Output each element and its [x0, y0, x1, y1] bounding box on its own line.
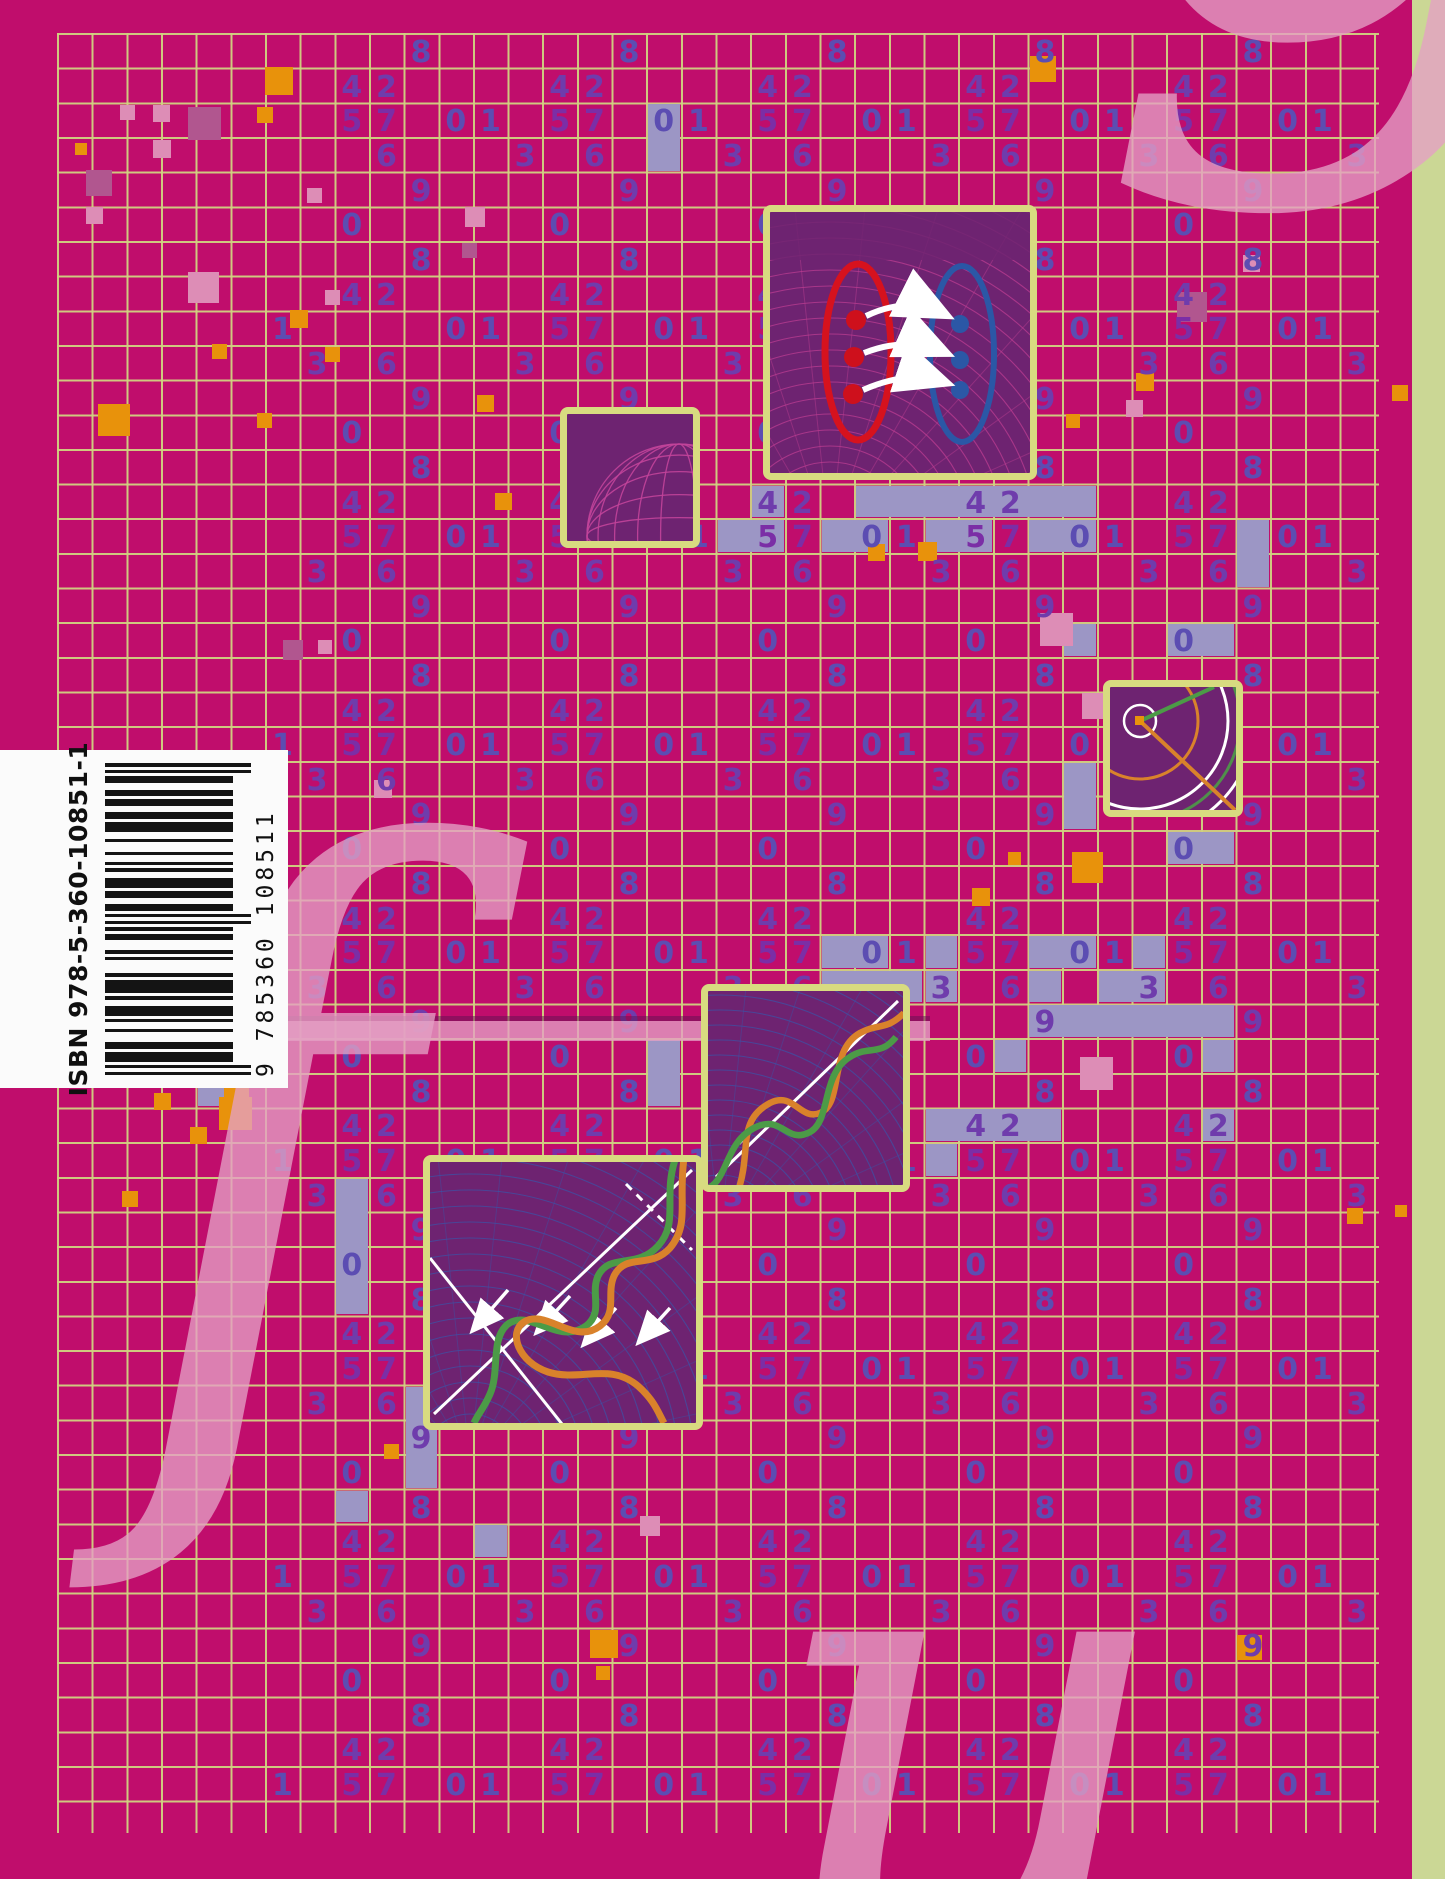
- pattern-digit: 5: [750, 1561, 785, 1594]
- pattern-digit: 0: [750, 833, 785, 866]
- pattern-digit: 8: [1235, 1076, 1270, 1109]
- pattern-digit: 9: [612, 799, 647, 832]
- pattern-digit: 1: [1305, 521, 1340, 554]
- barcode-gap: [105, 858, 233, 861]
- pattern-digit: 8: [1235, 36, 1270, 69]
- pattern-digit: 7: [577, 1561, 612, 1594]
- pattern-digit: 7: [785, 105, 820, 138]
- pattern-digit: 6: [1201, 140, 1236, 173]
- pattern-digit: 2: [369, 903, 404, 936]
- barcode-gap: [105, 1049, 233, 1052]
- pattern-digit: 2: [993, 71, 1028, 104]
- pink-square: [465, 207, 485, 227]
- pattern-digit: 5: [958, 1769, 993, 1802]
- pattern-digit: 1: [265, 1561, 300, 1594]
- pattern-digit: 5: [750, 1769, 785, 1802]
- pattern-digit: 7: [785, 1769, 820, 1802]
- barcode-gap: [105, 977, 233, 980]
- pattern-digit: 3: [1339, 1596, 1374, 1629]
- orange-square: [257, 413, 272, 428]
- pattern-digit: 3: [1339, 1180, 1374, 1213]
- pattern-digit: 4: [334, 71, 369, 104]
- barcode-gap: [105, 773, 233, 776]
- barcode-gap: [105, 1039, 233, 1042]
- pattern-digit: 5: [1166, 1561, 1201, 1594]
- barcode-bar: [105, 904, 233, 907]
- codomain-dot: [951, 381, 969, 399]
- barcode-bar: [105, 983, 233, 986]
- barcode-bar: [105, 878, 233, 881]
- pattern-digit: 9: [1027, 1422, 1062, 1455]
- barcode-bar: [105, 908, 233, 911]
- pattern-digit: 7: [1201, 105, 1236, 138]
- pattern-digit: 8: [404, 452, 439, 485]
- barcode-bar: [105, 895, 233, 898]
- pattern-digit: 0: [1062, 729, 1097, 762]
- barcode-gap: [105, 947, 233, 950]
- pattern-digit: 0: [958, 625, 993, 658]
- pattern-digit: 7: [1201, 1769, 1236, 1802]
- pattern-digit: 8: [1027, 1700, 1062, 1733]
- pattern-digit: 1: [1305, 937, 1340, 970]
- pattern-digit: 4: [958, 1734, 993, 1767]
- pattern-digit: 7: [577, 937, 612, 970]
- pattern-digit: 5: [334, 1145, 369, 1178]
- pattern-digit: 0: [646, 729, 681, 762]
- orange-square: [1392, 385, 1408, 401]
- pink-square: [318, 640, 332, 654]
- pattern-digit: 1: [1305, 1561, 1340, 1594]
- pattern-digit: 6: [577, 1596, 612, 1629]
- pattern-digit: 0: [1270, 1769, 1305, 1802]
- pattern-digit: 8: [612, 1492, 647, 1525]
- pattern-digit: 3: [716, 1596, 751, 1629]
- pattern-digit: 8: [612, 1700, 647, 1733]
- pattern-digit: 1: [1097, 105, 1132, 138]
- pink-square: [1080, 1057, 1113, 1090]
- pattern-digit: 4: [1166, 71, 1201, 104]
- pattern-digit: 5: [542, 105, 577, 138]
- pattern-digit: 0: [334, 1457, 369, 1490]
- pattern-digit: 8: [1027, 36, 1062, 69]
- pattern-digit: 0: [542, 625, 577, 658]
- pattern-digit: 4: [750, 1734, 785, 1767]
- pattern-digit: 3: [1131, 1180, 1166, 1213]
- iteration-arrow: [474, 1290, 508, 1329]
- lavender-cell: [475, 1525, 507, 1557]
- pattern-digit: 7: [993, 1145, 1028, 1178]
- pattern-digit: 3: [1339, 348, 1374, 381]
- pattern-digit: 7: [785, 1353, 820, 1386]
- pattern-digit: 9: [820, 1422, 855, 1455]
- pattern-digit: 2: [785, 1318, 820, 1351]
- pattern-digit: 6: [1201, 1180, 1236, 1213]
- pattern-digit: 9: [1235, 591, 1270, 624]
- pattern-digit: 6: [1201, 556, 1236, 589]
- barcode-gap: [105, 832, 233, 835]
- pattern-digit: 0: [542, 209, 577, 242]
- pattern-digit: 5: [1166, 1145, 1201, 1178]
- pattern-digit: 3: [924, 556, 959, 589]
- barcode-gap: [105, 1000, 233, 1003]
- pattern-digit: 2: [993, 903, 1028, 936]
- lavender-cell: [995, 1040, 1027, 1072]
- isbn-barcode-panel: ISBN 978-5-360-10851-1 9 785360 108511: [0, 750, 288, 1088]
- pattern-digit: 0: [854, 521, 889, 554]
- pattern-digit: 5: [542, 313, 577, 346]
- pattern-digit: 0: [854, 937, 889, 970]
- orange-curve: [738, 1013, 903, 1185]
- pattern-digit: 2: [577, 279, 612, 312]
- pattern-digit: 8: [404, 1492, 439, 1525]
- pattern-digit: 5: [334, 1561, 369, 1594]
- pattern-digit: 5: [1166, 313, 1201, 346]
- pattern-digit: 2: [1201, 1734, 1236, 1767]
- codomain-dot: [951, 351, 969, 369]
- pattern-digit: 3: [508, 1596, 543, 1629]
- pattern-digit: 8: [612, 1076, 647, 1109]
- pattern-digit: 2: [993, 1318, 1028, 1351]
- barcode-gap: [105, 1023, 233, 1026]
- pattern-digit: 6: [785, 1596, 820, 1629]
- pattern-digit: 3: [300, 1388, 335, 1421]
- barcode-gap: [105, 940, 233, 943]
- pattern-digit: 0: [1166, 625, 1201, 658]
- pattern-digit: 1: [681, 313, 716, 346]
- figure-angle-arcs: [1103, 680, 1243, 817]
- pattern-digit: 0: [958, 1665, 993, 1698]
- orange-square: [224, 1088, 249, 1113]
- pattern-digit: 6: [577, 972, 612, 1005]
- pattern-digit: 0: [854, 105, 889, 138]
- barcode-gap: [105, 888, 233, 891]
- barcode-bar: [105, 803, 233, 806]
- pattern-digit: 5: [958, 937, 993, 970]
- pattern-digit: 3: [924, 1180, 959, 1213]
- barcode-bar: [105, 885, 233, 888]
- barcode-gap: [105, 819, 233, 822]
- pattern-digit: 0: [334, 417, 369, 450]
- pattern-digit: 9: [1027, 591, 1062, 624]
- pattern-digit: 1: [1097, 1145, 1132, 1178]
- pattern-digit: 8: [612, 36, 647, 69]
- orange-square: [265, 67, 293, 95]
- pattern-digit: 9: [1027, 175, 1062, 208]
- pattern-digit: 5: [334, 105, 369, 138]
- pattern-digit: 5: [542, 1769, 577, 1802]
- pattern-digit: 2: [785, 695, 820, 728]
- pattern-digit: 7: [577, 105, 612, 138]
- pattern-digit: 6: [993, 1388, 1028, 1421]
- domain-dot: [844, 347, 864, 367]
- pattern-digit: 4: [958, 1526, 993, 1559]
- pattern-digit: 9: [1027, 1006, 1062, 1039]
- pattern-digit: 3: [1339, 972, 1374, 1005]
- barcode-bar: [105, 1009, 233, 1012]
- pattern-digit: 0: [1062, 1353, 1097, 1386]
- angle-ray-green: [1140, 687, 1214, 721]
- pattern-digit: 3: [300, 972, 335, 1005]
- pattern-digit: 2: [1201, 903, 1236, 936]
- pattern-digit: 5: [334, 937, 369, 970]
- pattern-digit: 3: [508, 348, 543, 381]
- pattern-digit: 3: [1131, 1388, 1166, 1421]
- pattern-digit: 1: [473, 1561, 508, 1594]
- pattern-digit: 3: [508, 972, 543, 1005]
- pattern-digit: 3: [300, 1596, 335, 1629]
- pattern-digit: 3: [300, 556, 335, 589]
- pink-square: [462, 243, 477, 258]
- pattern-digit: 0: [1166, 209, 1201, 242]
- pattern-digit: 0: [334, 1665, 369, 1698]
- pattern-digit: 9: [404, 591, 439, 624]
- barcode-bar: [105, 822, 233, 825]
- pattern-digit: 8: [1027, 1076, 1062, 1109]
- pattern-digit: 2: [1201, 71, 1236, 104]
- pattern-digit: 3: [924, 1388, 959, 1421]
- pattern-digit: 0: [854, 729, 889, 762]
- pattern-digit: 1: [889, 1561, 924, 1594]
- pattern-digit: 1: [1305, 1769, 1340, 1802]
- pattern-digit: 7: [993, 1353, 1028, 1386]
- pattern-digit: 0: [750, 1249, 785, 1282]
- barcode-gap: [105, 960, 233, 963]
- pattern-digit: 3: [716, 140, 751, 173]
- pattern-digit: 8: [612, 868, 647, 901]
- pattern-digit: 5: [958, 1145, 993, 1178]
- pattern-digit: 9: [820, 1630, 855, 1663]
- barcode-bar: [105, 839, 233, 842]
- pattern-digit: 5: [1166, 937, 1201, 970]
- pattern-digit: 0: [1270, 1353, 1305, 1386]
- pattern-digit: 8: [404, 36, 439, 69]
- barcode-gap: [105, 865, 233, 868]
- pink-square: [153, 105, 170, 122]
- pattern-digit: 6: [993, 1596, 1028, 1629]
- pattern-digit: 0: [438, 313, 473, 346]
- pattern-digit: 2: [369, 487, 404, 520]
- figure-surface-mesh: [560, 407, 700, 548]
- barcode-bar: [105, 790, 233, 793]
- pattern-digit: 4: [542, 1526, 577, 1559]
- pattern-digit: 7: [577, 1769, 612, 1802]
- pattern-digit: 5: [1166, 521, 1201, 554]
- barcode-gap: [105, 855, 233, 858]
- pattern-digit: 4: [334, 1526, 369, 1559]
- pattern-digit: 3: [924, 764, 959, 797]
- barcode-gap: [105, 963, 233, 966]
- barcode-bar: [105, 862, 233, 865]
- pattern-digit: 8: [820, 868, 855, 901]
- barcode-bar: [105, 826, 233, 829]
- pattern-digit: 0: [438, 1561, 473, 1594]
- pattern-digit: 1: [1305, 1145, 1340, 1178]
- pattern-digit: 5: [334, 729, 369, 762]
- barcode-bar: [105, 1006, 233, 1009]
- pattern-digit: 0: [646, 313, 681, 346]
- barcode-bar: [105, 914, 251, 917]
- barcode-bar: [105, 973, 233, 976]
- pattern-digit: 1: [473, 521, 508, 554]
- pattern-digit: 4: [542, 279, 577, 312]
- pattern-digit: 8: [1235, 1284, 1270, 1317]
- pattern-digit: 8: [404, 1700, 439, 1733]
- pattern-digit: 0: [646, 1561, 681, 1594]
- orange-square: [1072, 852, 1103, 883]
- barcode-bar: [105, 881, 233, 884]
- pattern-digit: 3: [1339, 1388, 1374, 1421]
- barcode-gap: [105, 809, 233, 812]
- barcode-gap: [105, 911, 251, 914]
- book-back-cover: 8425701690842013690184257013690842570136…: [0, 0, 1445, 1879]
- figure-mapping-diagram: [763, 205, 1037, 480]
- pattern-digit: 0: [334, 1041, 369, 1074]
- pattern-digit: 1: [1305, 105, 1340, 138]
- orange-square: [190, 1127, 207, 1144]
- pattern-digit: 4: [542, 695, 577, 728]
- right-edge-strip: [1412, 0, 1445, 1879]
- pattern-digit: 0: [1166, 1665, 1201, 1698]
- pink-square: [307, 188, 322, 203]
- pattern-digit: 5: [1166, 1769, 1201, 1802]
- pattern-digit: 5: [334, 521, 369, 554]
- pattern-digit: 4: [334, 1318, 369, 1351]
- pattern-digit: 6: [1201, 348, 1236, 381]
- barcode-bar: [105, 986, 233, 989]
- orange-square: [212, 344, 227, 359]
- pattern-digit: 0: [438, 521, 473, 554]
- barcode-bar: [105, 957, 233, 960]
- pattern-digit: 0: [1270, 937, 1305, 970]
- barcode-bar: [105, 1045, 233, 1048]
- barcode-gap: [105, 783, 233, 786]
- orange-square: [257, 107, 273, 123]
- pattern-digit: 1: [1097, 937, 1132, 970]
- pattern-digit: 1: [681, 729, 716, 762]
- barcode-gap: [105, 1003, 233, 1006]
- pattern-digit: 8: [612, 660, 647, 693]
- pattern-digit: 4: [542, 71, 577, 104]
- pattern-digit: 7: [369, 1769, 404, 1802]
- lavender-cell: [926, 1144, 958, 1176]
- pattern-digit: 4: [334, 279, 369, 312]
- pattern-digit: 9: [1235, 1422, 1270, 1455]
- pattern-digit: 7: [785, 937, 820, 970]
- pattern-digit: 4: [750, 695, 785, 728]
- pattern-digit: 0: [1270, 313, 1305, 346]
- pattern-digit: 9: [404, 175, 439, 208]
- pattern-digit: 3: [716, 556, 751, 589]
- barcode-gap: [105, 1032, 233, 1035]
- sphere-wireframe: [587, 444, 693, 541]
- barcode-gap: [105, 845, 233, 848]
- pattern-digit: 4: [1166, 1110, 1201, 1143]
- pattern-digit: 7: [993, 937, 1028, 970]
- pink-square: [153, 140, 171, 158]
- barcode-gap: [105, 944, 233, 947]
- pattern-digit: 0: [1062, 1145, 1097, 1178]
- pattern-digit: 2: [369, 1526, 404, 1559]
- pattern-digit: 0: [646, 105, 681, 138]
- pattern-digit: 3: [1131, 140, 1166, 173]
- pattern-digit: 9: [612, 1630, 647, 1663]
- pattern-digit: 0: [1270, 1561, 1305, 1594]
- pattern-digit: 1: [681, 1561, 716, 1594]
- barcode-bars: [105, 763, 235, 1075]
- pattern-digit: 0: [854, 1353, 889, 1386]
- pattern-digit: 0: [1166, 1457, 1201, 1490]
- pattern-digit: 5: [958, 1561, 993, 1594]
- pattern-digit: 0: [1270, 521, 1305, 554]
- pattern-digit: 9: [820, 175, 855, 208]
- orange-square: [1395, 1205, 1407, 1217]
- barcode-gap: [105, 967, 233, 970]
- pattern-digit: 2: [577, 71, 612, 104]
- pattern-digit: 0: [542, 1457, 577, 1490]
- angle-vertex: [1135, 716, 1144, 725]
- lavender-cell: [1133, 936, 1165, 968]
- pink-square: [1126, 400, 1143, 417]
- barcode-gap: [105, 767, 251, 770]
- barcode-bar: [105, 793, 233, 796]
- pattern-digit: 0: [854, 1769, 889, 1802]
- pattern-digit: 0: [438, 105, 473, 138]
- pattern-digit: 0: [542, 833, 577, 866]
- pattern-digit: 0: [334, 209, 369, 242]
- barcode-bar: [105, 813, 233, 816]
- pattern-digit: 9: [1235, 1006, 1270, 1039]
- pattern-digit: 1: [889, 105, 924, 138]
- pattern-digit: 2: [369, 695, 404, 728]
- pattern-digit: 0: [958, 1041, 993, 1074]
- pink-square: [86, 207, 103, 224]
- pattern-digit: 5: [958, 729, 993, 762]
- pattern-digit: 1: [473, 1769, 508, 1802]
- pattern-digit: 8: [1235, 452, 1270, 485]
- pattern-digit: 2: [369, 1110, 404, 1143]
- pattern-digit: 9: [1027, 1214, 1062, 1247]
- pattern-digit: 5: [750, 937, 785, 970]
- pink-square: [86, 170, 112, 196]
- pattern-digit: 6: [993, 764, 1028, 797]
- pattern-digit: 3: [508, 556, 543, 589]
- lavender-cell: [1029, 971, 1061, 1003]
- pattern-digit: 7: [1201, 1561, 1236, 1594]
- pattern-digit: 4: [1166, 903, 1201, 936]
- pattern-digit: 8: [404, 244, 439, 277]
- pattern-digit: 8: [1235, 1492, 1270, 1525]
- pattern-digit: 8: [612, 244, 647, 277]
- pattern-digit: 6: [369, 972, 404, 1005]
- pattern-digit: 4: [750, 903, 785, 936]
- pattern-digit: 6: [577, 140, 612, 173]
- pattern-digit: 1: [265, 1145, 300, 1178]
- barcode-bar: [105, 799, 233, 802]
- pattern-digit: 0: [542, 1665, 577, 1698]
- pattern-digit: 7: [369, 937, 404, 970]
- pattern-digit: 0: [750, 1457, 785, 1490]
- pattern-digit: 8: [820, 1492, 855, 1525]
- pattern-digit: 0: [334, 1249, 369, 1282]
- barcode-bar: [105, 1042, 233, 1045]
- pattern-digit: 5: [958, 1353, 993, 1386]
- pattern-digit: 5: [542, 1561, 577, 1594]
- pattern-digit: 2: [785, 487, 820, 520]
- barcode-bar: [105, 1013, 233, 1016]
- pattern-digit: 9: [1027, 1630, 1062, 1663]
- pattern-digit: 9: [1235, 175, 1270, 208]
- lavender-cell: [1064, 763, 1096, 829]
